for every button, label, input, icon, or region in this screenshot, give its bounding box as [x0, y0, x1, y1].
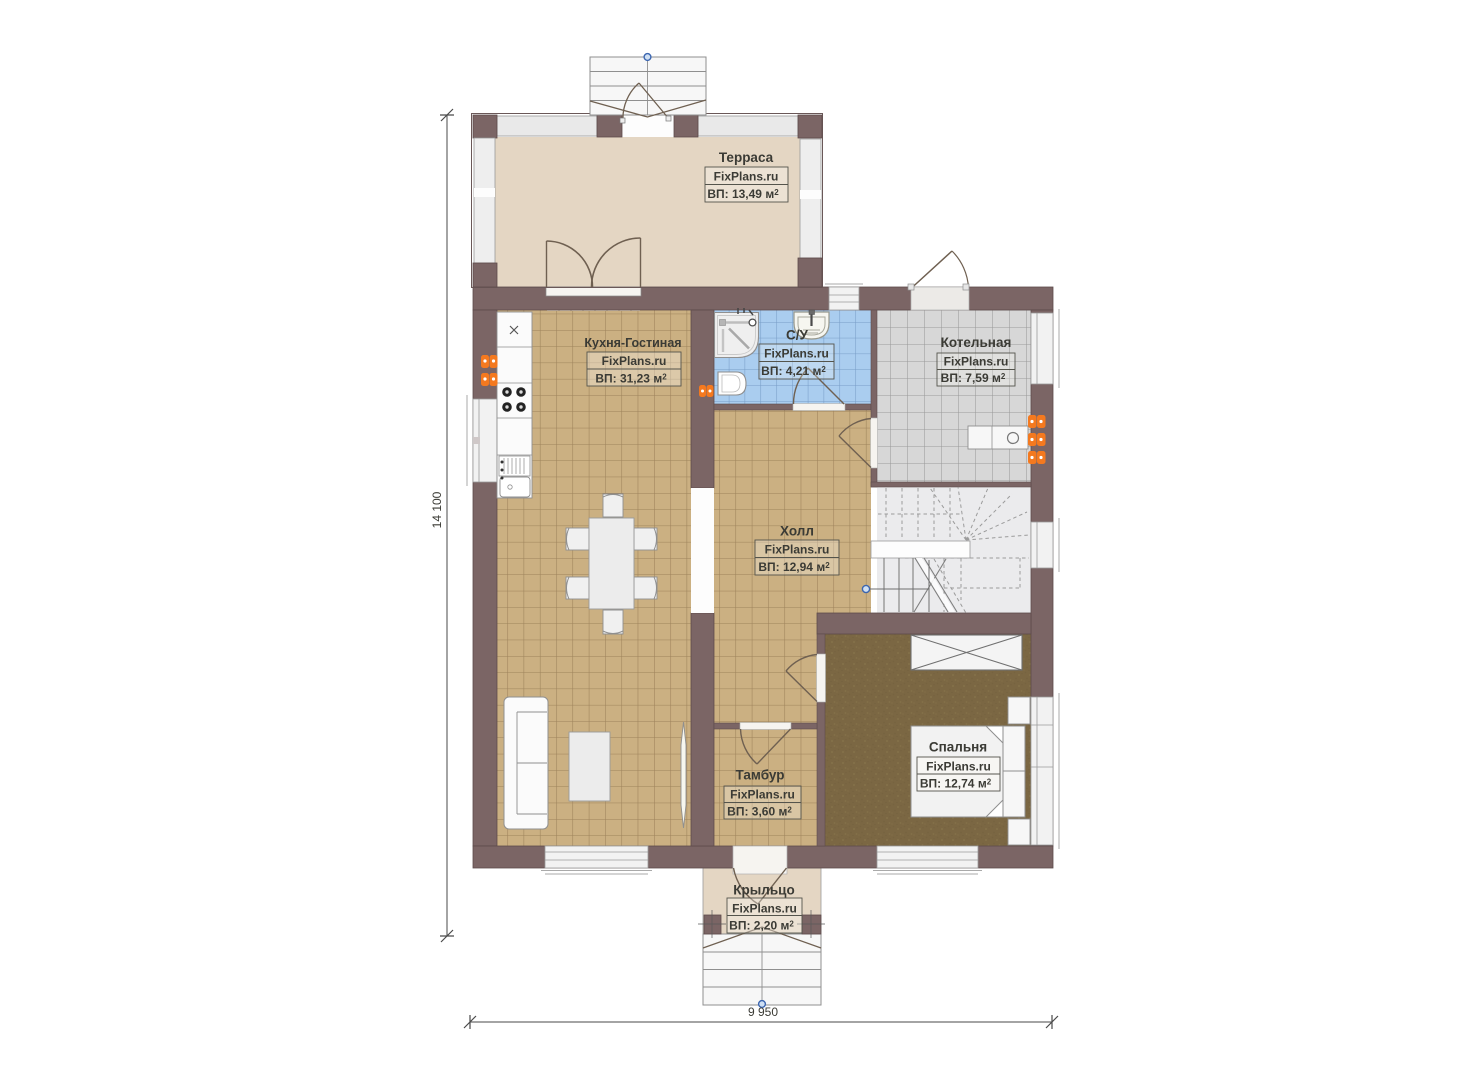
svg-text:Тамбур: Тамбур [736, 768, 785, 783]
svg-text:FixPlans.ru: FixPlans.ru [926, 760, 991, 774]
svg-text:ВП: 12,74 м2: ВП: 12,74 м2 [920, 777, 992, 791]
svg-text:Котельная: Котельная [941, 335, 1012, 350]
svg-text:ВП: 2,20 м2: ВП: 2,20 м2 [729, 919, 794, 933]
svg-text:Крыльцо: Крыльцо [733, 883, 794, 898]
svg-text:Холл: Холл [780, 524, 814, 539]
svg-text:ВП: 31,23 м2: ВП: 31,23 м2 [595, 372, 667, 386]
svg-text:FixPlans.ru: FixPlans.ru [714, 170, 779, 184]
svg-text:FixPlans.ru: FixPlans.ru [602, 354, 667, 368]
svg-text:FixPlans.ru: FixPlans.ru [730, 788, 795, 802]
svg-text:14 100: 14 100 [430, 491, 444, 528]
svg-text:Терраса: Терраса [719, 150, 774, 165]
svg-text:9 950: 9 950 [748, 1005, 778, 1019]
svg-text:FixPlans.ru: FixPlans.ru [764, 347, 829, 361]
svg-text:С/У: С/У [786, 328, 809, 343]
svg-text:ВП: 13,49 м2: ВП: 13,49 м2 [707, 187, 779, 201]
svg-text:ВП: 3,60 м2: ВП: 3,60 м2 [727, 805, 792, 819]
svg-text:FixPlans.ru: FixPlans.ru [944, 355, 1009, 369]
svg-text:ВП: 12,94 м2: ВП: 12,94 м2 [758, 560, 830, 574]
svg-text:Кухня-Гостиная: Кухня-Гостиная [584, 336, 681, 350]
svg-text:ВП: 7,59 м2: ВП: 7,59 м2 [941, 371, 1006, 385]
svg-text:FixPlans.ru: FixPlans.ru [765, 543, 830, 557]
svg-text:FixPlans.ru: FixPlans.ru [732, 902, 797, 916]
svg-text:ВП: 4,21 м2: ВП: 4,21 м2 [761, 364, 826, 378]
svg-text:Спальня: Спальня [929, 740, 987, 755]
